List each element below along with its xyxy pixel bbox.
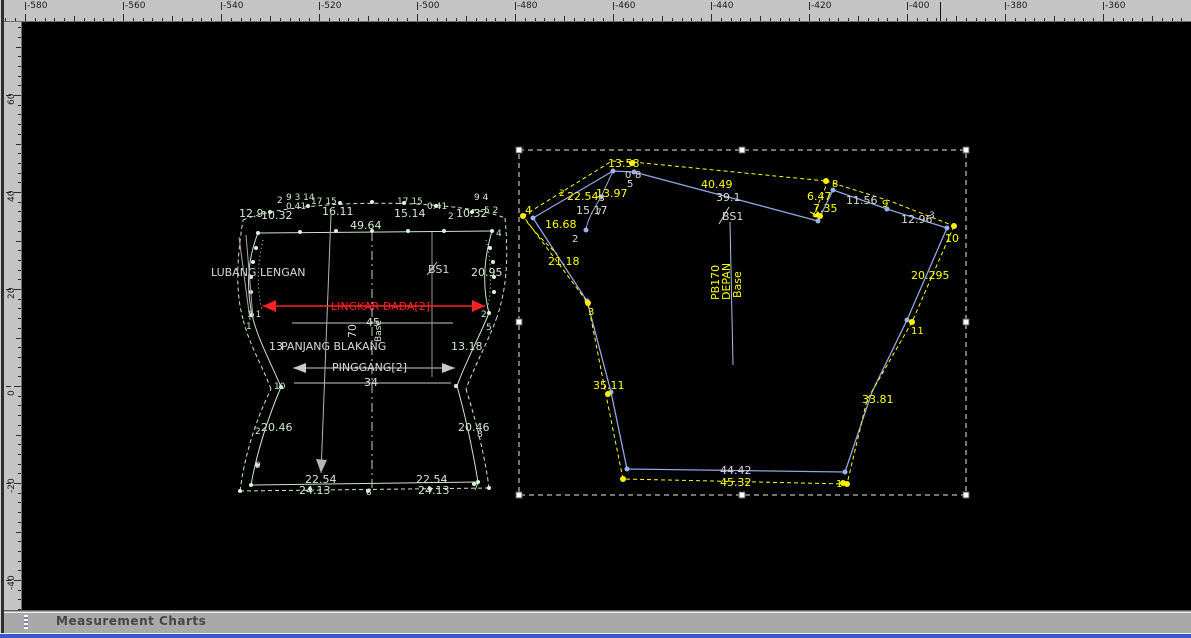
ruler-tick [603, 18, 604, 21]
ruler-tick [1152, 16, 1153, 21]
measurement-label[interactable]: 20.295 [911, 269, 950, 282]
ruler-tick [1054, 16, 1055, 21]
ruler-label: 20 [7, 288, 17, 299]
ruler-tick [18, 260, 21, 261]
measurement-label[interactable]: 9 [255, 461, 261, 471]
bs1-label[interactable]: BS1 [722, 210, 743, 223]
pattern-point[interactable] [442, 229, 446, 233]
pattern-point[interactable] [491, 260, 495, 264]
selection-handle[interactable] [739, 492, 745, 498]
ruler-label: -460 [615, 1, 635, 11]
ruler-tick [18, 541, 21, 542]
ruler-tick [1044, 18, 1045, 21]
ruler-tick [18, 124, 21, 125]
measurement-label[interactable]: 10 [274, 382, 286, 392]
selection-handle[interactable] [739, 147, 745, 153]
ruler-tick [18, 512, 21, 513]
measurement-label[interactable]: 2 [481, 310, 487, 320]
ruler-tick [809, 14, 810, 21]
pattern-point[interactable] [254, 246, 258, 250]
ruler-tick [1172, 18, 1173, 21]
ruler-tick [525, 18, 526, 21]
ruler-tick [339, 18, 340, 21]
measurement-label[interactable]: 10 [945, 232, 959, 245]
pattern-point[interactable] [843, 470, 848, 475]
measurement-label[interactable]: 7 [473, 483, 479, 493]
ruler-tick [1142, 18, 1143, 21]
ruler-tick [358, 18, 359, 21]
ruler-tick [16, 144, 21, 145]
ruler-tick [18, 85, 21, 86]
ruler-tick [14, 386, 21, 387]
pattern-point[interactable] [492, 290, 496, 294]
pattern-point[interactable] [487, 311, 491, 315]
measurement-label[interactable]: 13.58 [608, 157, 640, 170]
ruler-tick-major [221, 2, 222, 10]
pattern-point[interactable] [945, 226, 950, 231]
ruler-tick [16, 47, 21, 48]
horizontal-ruler[interactable]: -580-560-540-520-500-480-460-440-420-400… [4, 0, 1191, 22]
ruler-tick [829, 18, 830, 21]
ruler-tick [1181, 18, 1182, 21]
ruler-label: -40 [7, 575, 17, 590]
ruler-tick-major [1005, 2, 1006, 10]
pattern-point[interactable] [406, 229, 410, 233]
ruler-tick-major [711, 2, 712, 10]
ruler-tick [290, 18, 291, 21]
ruler-tick [18, 163, 21, 164]
measurement-label[interactable]: 20.46 [458, 421, 490, 434]
ruler-tick [633, 18, 634, 21]
ruler-tick [407, 18, 408, 21]
ruler-tick [682, 18, 683, 21]
measurement-label[interactable]: 39.1 [716, 191, 741, 204]
ruler-tick [64, 18, 65, 21]
ruler-tick [18, 279, 21, 280]
pattern-point[interactable] [251, 260, 255, 264]
ruler-tick [378, 18, 379, 21]
ruler-tick [18, 502, 21, 503]
seam-point[interactable] [620, 476, 626, 482]
docked-panel-edge [0, 633, 1191, 638]
ruler-tick [917, 18, 918, 21]
ruler-tick [868, 18, 869, 21]
measurement-label[interactable]: 7.35 [813, 202, 838, 215]
ruler-label: -480 [517, 1, 537, 11]
measurement-label[interactable]: 0.41 [427, 202, 447, 212]
measurement-label[interactable]: 2 [448, 212, 454, 222]
ruler-tick [18, 464, 21, 465]
measurement-label[interactable]: 20.46 [261, 421, 293, 434]
ruler-tick [18, 308, 21, 309]
ruler-tick [18, 173, 21, 174]
selection-handle[interactable] [963, 147, 969, 153]
measurement-label[interactable]: 22.54 [567, 190, 599, 203]
ruler-tick [584, 18, 585, 21]
selection-handle[interactable] [516, 319, 522, 325]
ruler-label: -440 [713, 1, 733, 11]
measurement-label[interactable]: 15.14 [394, 207, 426, 220]
measurement-label[interactable]: 1 [836, 479, 842, 490]
ruler-tick [18, 425, 21, 426]
ruler-tick [182, 18, 183, 21]
ruler-tick [711, 14, 712, 21]
ruler-tick [192, 18, 193, 21]
ruler-label: -560 [125, 1, 145, 11]
ruler-tick [1034, 18, 1035, 21]
ruler-tick [221, 14, 222, 21]
ruler-tick [740, 18, 741, 21]
measurement-label[interactable]: 1 [246, 322, 252, 332]
ruler-tick-major [123, 2, 124, 10]
ruler-tick [18, 367, 21, 368]
measurement-label[interactable]: 24.13 [299, 484, 331, 497]
measurement-label[interactable]: 5 [486, 323, 492, 333]
ruler-tick [54, 18, 55, 21]
ruler-tick [152, 18, 153, 21]
ruler-tick [1093, 18, 1094, 21]
ruler-tick [172, 16, 173, 21]
ruler-tick [554, 18, 555, 21]
ruler-tick [16, 435, 21, 436]
measurement-label[interactable]: 5 [627, 179, 633, 190]
ruler-tick [456, 18, 457, 21]
measurement-label[interactable]: 49.64 [350, 219, 382, 232]
ruler-tick [45, 18, 46, 21]
ruler-label: 40 [7, 191, 17, 202]
measurement-label[interactable]: 44.42 [720, 464, 752, 477]
measurement-label[interactable]: 70 [346, 324, 359, 338]
measurement-label[interactable]: 3 [599, 194, 605, 204]
selection-handle[interactable] [963, 319, 969, 325]
ruler-tick [241, 18, 242, 21]
measurement-charts-title: Measurement Charts [56, 614, 206, 628]
measurement-label[interactable]: 17 15 [397, 197, 423, 207]
ruler-label: 60 [7, 94, 17, 105]
pattern-point[interactable] [256, 231, 260, 235]
ruler-tick [18, 328, 21, 329]
seam-point[interactable] [909, 319, 915, 325]
measurement-label[interactable]: 3 [588, 307, 594, 318]
ruler-tick [1113, 18, 1114, 21]
measurement-label[interactable]: 33.81 [862, 393, 894, 406]
ruler-label: -520 [321, 1, 341, 11]
measurement-label[interactable]: 17 15 [311, 197, 337, 207]
ruler-tick [18, 114, 21, 115]
ruler-tick [593, 18, 594, 21]
ruler-label: -540 [223, 1, 243, 11]
ruler-tick [731, 18, 732, 21]
ruler-tick [18, 231, 21, 232]
ruler-tick [486, 18, 487, 21]
ruler-tick [94, 18, 95, 21]
ruler-tick [1083, 18, 1084, 21]
ruler-tick [672, 18, 673, 21]
ruler-tick [505, 18, 506, 21]
ruler-tick [260, 18, 261, 21]
ruler-tick [397, 18, 398, 21]
ruler-tick [838, 18, 839, 21]
ruler-tick [476, 18, 477, 21]
ruler-tick [309, 18, 310, 21]
back-length-label[interactable]: PANJANG BLAKANG [281, 340, 386, 353]
ruler-tick-major [319, 2, 320, 10]
ruler-tick [848, 18, 849, 21]
ruler-tick [966, 18, 967, 21]
ruler-tick [446, 18, 447, 21]
ruler-tick [18, 66, 21, 67]
selection-handle[interactable] [516, 492, 522, 498]
ruler-tick-major [25, 2, 26, 10]
ruler-tick-major [613, 2, 614, 10]
ruler-tick-major [6, 386, 11, 387]
piece-name-label[interactable]: Base [731, 271, 744, 298]
measurement-label[interactable]: 10.32 [456, 207, 488, 220]
ruler-tick [907, 14, 908, 21]
measurement-label[interactable]: 10.32 [261, 209, 293, 222]
measurement-label[interactable]: 4 [525, 204, 532, 217]
measurement-label[interactable]: 9 4 [474, 193, 489, 203]
ruler-tick [16, 338, 21, 339]
ruler-tick [280, 18, 281, 21]
ruler-tick [270, 16, 271, 21]
ruler-tick [18, 76, 21, 77]
ruler-tick [18, 347, 21, 348]
measurement-label[interactable]: 2 [559, 189, 565, 199]
ruler-tick [133, 18, 134, 21]
ruler-tick [84, 18, 85, 21]
ruler-tick [18, 415, 21, 416]
ruler-tick [5, 18, 6, 21]
ruler-tick [946, 18, 947, 21]
ruler-tick-major [1103, 2, 1104, 10]
ruler-tick-major [907, 2, 908, 10]
ruler-tick [1064, 18, 1065, 21]
ruler-label: -500 [419, 1, 439, 11]
pattern-point[interactable] [454, 384, 458, 388]
ruler-tick [18, 561, 21, 562]
ruler-label: 0 [7, 390, 17, 396]
ruler-tick [15, 18, 16, 21]
ruler-tick [780, 18, 781, 21]
ruler-tick [956, 16, 957, 21]
ruler-tick [515, 14, 516, 21]
pattern-point[interactable] [306, 204, 310, 208]
ruler-tick [721, 18, 722, 21]
ruler-tick [691, 18, 692, 21]
ruler-tick [74, 16, 75, 21]
measurement-label[interactable]: 12.9 [239, 207, 264, 220]
measurement-label[interactable]: 20.95 [471, 266, 503, 279]
measurement-label[interactable]: 15.17 [576, 204, 608, 217]
pattern-point[interactable] [584, 228, 589, 233]
pattern-cad-window: 29 3 140.4112.910.3216.1117 1549.6417 15… [0, 0, 1191, 638]
measurement-charts-bar[interactable]: Measurement Charts [4, 610, 1191, 633]
pattern-point[interactable] [490, 229, 494, 233]
ruler-tick [388, 18, 389, 21]
chest-girth-label[interactable]: LINGKAR DADA[2] [331, 300, 430, 313]
ruler-tick [18, 376, 21, 377]
ruler-tick [1132, 18, 1133, 21]
ruler-tick [564, 16, 565, 21]
ruler-tick-major [417, 2, 418, 10]
ruler-tick [760, 16, 761, 21]
ruler-tick [18, 211, 21, 212]
ruler-tick [113, 18, 114, 21]
ruler-tick [319, 14, 320, 21]
ruler-tick [368, 16, 369, 21]
armhole-label[interactable]: LUBANG LENGAN [211, 266, 306, 279]
pattern-point[interactable] [816, 219, 821, 224]
ruler-tick [985, 18, 986, 21]
ruler-tick [1015, 18, 1016, 21]
vertical-ruler[interactable]: 6040200-20-40 [4, 22, 22, 610]
measurement-label[interactable]: 40.49 [701, 178, 733, 191]
ruler-tick [437, 18, 438, 21]
ruler-tick [701, 18, 702, 21]
ruler-tick [18, 134, 21, 135]
measurement-label[interactable]: 13.18 [451, 340, 483, 353]
ruler-tick [348, 18, 349, 21]
ruler-tick [466, 16, 467, 21]
measurement-label[interactable]: 11.56 [846, 194, 878, 207]
measurement-label[interactable]: 8 [477, 430, 483, 440]
ruler-tick [750, 18, 751, 21]
ruler-label: -380 [1007, 1, 1027, 11]
ruler-label: -360 [1105, 1, 1125, 11]
pattern-point[interactable] [238, 489, 242, 493]
ruler-tick [495, 18, 496, 21]
ruler-tick [1162, 18, 1163, 21]
measurement-label[interactable]: 16.68 [545, 218, 577, 231]
measurement-label[interactable]: 8 [635, 170, 641, 181]
ruler-tick [1005, 14, 1006, 21]
measurement-label[interactable]: 35.11 [593, 379, 625, 392]
ruler-tick [819, 18, 820, 21]
drag-handle[interactable] [24, 615, 28, 629]
ruler-tick [18, 405, 21, 406]
ruler-tick [18, 221, 21, 222]
ruler-tick [18, 396, 21, 397]
ruler-tick [18, 270, 21, 271]
measurement-label[interactable]: 4 [496, 229, 502, 239]
ruler-tick [18, 37, 21, 38]
measurement-label[interactable]: 2 [572, 234, 578, 245]
ruler-cursor-marker [940, 2, 941, 21]
ruler-tick [16, 241, 21, 242]
ruler-tick [18, 599, 21, 600]
pattern-point[interactable] [249, 483, 253, 487]
ruler-tick [211, 18, 212, 21]
measurement-label[interactable]: 2 [255, 427, 261, 437]
ruler-tick [250, 18, 251, 21]
ruler-label: -400 [909, 1, 929, 11]
ruler-tick [887, 18, 888, 21]
measurement-label[interactable]: 45.32 [720, 476, 752, 489]
ruler-tick [927, 18, 928, 21]
ruler-tick [18, 570, 21, 571]
measurement-label[interactable]: 8 [366, 488, 372, 498]
ruler-tick-major [809, 2, 810, 10]
ruler-tick [936, 18, 937, 21]
measurement-label[interactable]: 12.96 [901, 213, 933, 226]
ruler-tick [652, 18, 653, 21]
ruler-tick [770, 18, 771, 21]
ruler-tick [417, 14, 418, 21]
seam-point[interactable] [951, 223, 957, 229]
ruler-tick [143, 18, 144, 21]
ruler-tick [18, 250, 21, 251]
ruler-tick [642, 18, 643, 21]
measurement-label[interactable]: 8 [832, 179, 838, 190]
ruler-tick [613, 14, 614, 21]
ruler-tick [18, 202, 21, 203]
measurement-label[interactable]: 2 [277, 196, 283, 206]
selection-handle[interactable] [963, 492, 969, 498]
ruler-tick [18, 551, 21, 552]
ruler-tick [535, 18, 536, 21]
ruler-tick [897, 18, 898, 21]
measurement-label[interactable]: 3 [929, 211, 935, 221]
selection-handle[interactable] [516, 147, 522, 153]
ruler-tick [799, 18, 800, 21]
ruler-tick [1074, 18, 1075, 21]
ruler-tick [18, 454, 21, 455]
pattern-point[interactable] [487, 486, 491, 490]
ruler-tick [299, 18, 300, 21]
ruler-tick [427, 18, 428, 21]
pattern-point[interactable] [298, 230, 302, 234]
ruler-tick [976, 18, 977, 21]
ruler-tick [35, 18, 36, 21]
pattern-point[interactable] [625, 467, 630, 472]
ruler-tick [574, 18, 575, 21]
ruler-tick [878, 18, 879, 21]
ruler-label: -580 [27, 1, 47, 11]
ruler-tick [16, 532, 21, 533]
pattern-point[interactable] [488, 246, 492, 250]
pattern-point[interactable] [905, 318, 910, 323]
ruler-tick [18, 299, 21, 300]
ruler-tick [329, 18, 330, 21]
ruler-tick [623, 18, 624, 21]
ruler-tick [18, 318, 21, 319]
ruler-tick [103, 18, 104, 21]
measurement-label[interactable]: 21.18 [548, 255, 580, 268]
measurement-label[interactable]: 24.13 [418, 484, 450, 497]
seam-point[interactable] [823, 178, 829, 184]
ruler-tick [18, 182, 21, 183]
ruler-tick [18, 153, 21, 154]
ruler-tick [18, 105, 21, 106]
measurement-label[interactable]: 9 [882, 199, 888, 210]
ruler-label: -20 [7, 478, 17, 493]
measurement-label[interactable]: 7 [596, 208, 602, 218]
ruler-tick [18, 27, 21, 28]
ruler-tick [18, 444, 21, 445]
ruler-tick-major [515, 2, 516, 10]
pattern-point[interactable] [370, 200, 374, 204]
measurement-label[interactable]: 11 [911, 326, 924, 337]
ruler-label: -420 [811, 1, 831, 11]
ruler-tick [162, 18, 163, 21]
seam-point[interactable] [585, 300, 591, 306]
ruler-tick [544, 18, 545, 21]
measurement-label[interactable]: 5 2 [484, 206, 498, 216]
drawing-canvas[interactable] [22, 22, 1191, 610]
pattern-point[interactable] [334, 229, 338, 233]
ruler-tick [18, 473, 21, 474]
